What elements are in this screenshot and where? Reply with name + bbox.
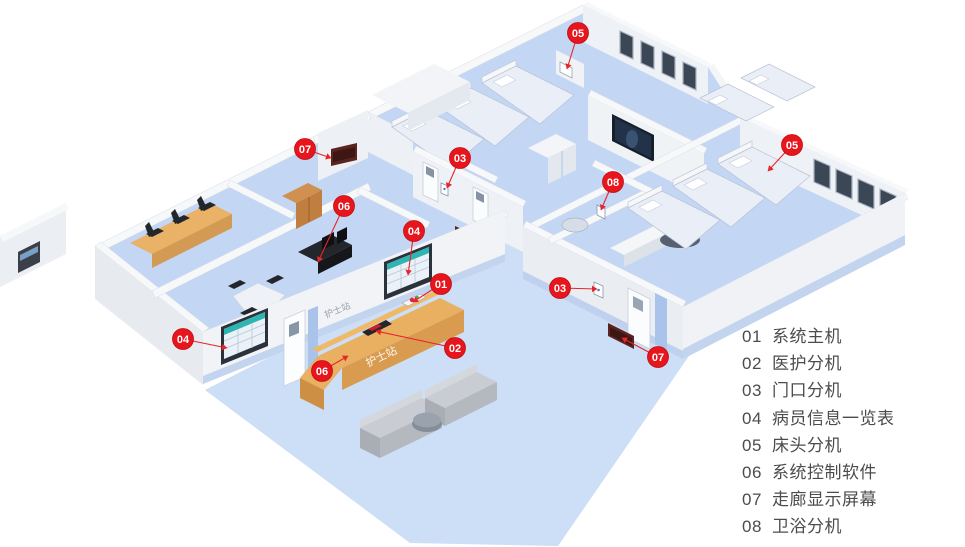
legend-item-number: 01	[742, 327, 772, 347]
legend-item-number: 07	[742, 490, 772, 510]
marker-number: 04	[408, 226, 421, 238]
bed	[741, 64, 815, 101]
legend-item-number: 03	[742, 381, 772, 401]
legend-item-03: 03门口分机	[742, 376, 895, 403]
legend-item-number: 04	[742, 409, 772, 429]
legend-item-label: 病员信息一览表	[772, 404, 895, 429]
marker-number: 06	[316, 366, 328, 378]
legend-item-number: 05	[742, 436, 772, 456]
legend-item-08: 08卫浴分机	[742, 512, 895, 539]
marker-pin-06: 06	[312, 361, 333, 382]
marker-pin-05: 05	[782, 135, 803, 156]
marker-pin-01: 01	[431, 274, 452, 295]
marker-pin-03: 03	[450, 148, 471, 169]
marker-number: 05	[786, 140, 798, 152]
marker-pin-04: 04	[173, 329, 194, 350]
legend-item-07: 07走廊显示屏幕	[742, 485, 895, 512]
coffee-table	[412, 413, 442, 433]
left-edge-room-fragment	[0, 203, 69, 287]
legend-item-label: 系统主机	[772, 322, 842, 347]
marker-number: 04	[177, 334, 190, 346]
marker-pin-07: 07	[295, 139, 316, 160]
marker-number: 07	[652, 352, 664, 364]
legend-item-label: 门口分机	[772, 376, 842, 401]
marker-pin-03: 03	[550, 278, 571, 299]
marker-pin-07: 07	[648, 347, 669, 368]
marker-pin-08: 08	[603, 172, 624, 193]
legend-item-05: 05床头分机	[742, 431, 895, 458]
marker-number: 01	[435, 279, 447, 291]
legend-item-number: 08	[742, 517, 772, 537]
marker-pin-04: 04	[404, 221, 425, 242]
marker-pin-06: 06	[334, 196, 355, 217]
legend-item-04: 04病员信息一览表	[742, 404, 895, 431]
floorplan-canvas: 护士站 护士站	[0, 0, 965, 547]
legend-item-label: 卫浴分机	[772, 512, 842, 537]
marker-number: 08	[607, 177, 619, 189]
marker-number: 02	[449, 343, 461, 355]
marker-pin-02: 02	[445, 338, 466, 359]
legend-item-label: 走廊显示屏幕	[772, 485, 877, 510]
legend: 01系统主机02医护分机03门口分机04病员信息一览表05床头分机06系统控制软…	[742, 322, 895, 540]
marker-number: 03	[454, 153, 466, 165]
legend-item-label: 床头分机	[772, 431, 842, 456]
legend-item-number: 06	[742, 463, 772, 483]
legend-item-02: 02医护分机	[742, 349, 895, 376]
marker-number: 05	[572, 28, 584, 40]
legend-item-number: 02	[742, 354, 772, 374]
legend-item-label: 系统控制软件	[772, 458, 877, 483]
legend-item-01: 01系统主机	[742, 322, 895, 349]
marker-number: 06	[338, 201, 350, 213]
wall-accent-band	[655, 293, 667, 350]
lobby-door-left	[284, 310, 305, 386]
marker-pin-05: 05	[568, 23, 589, 44]
marker-number: 07	[299, 144, 311, 156]
legend-item-06: 06系统控制软件	[742, 458, 895, 485]
marker-number: 03	[554, 283, 566, 295]
ward-door	[423, 162, 438, 202]
legend-item-label: 医护分机	[772, 349, 842, 374]
